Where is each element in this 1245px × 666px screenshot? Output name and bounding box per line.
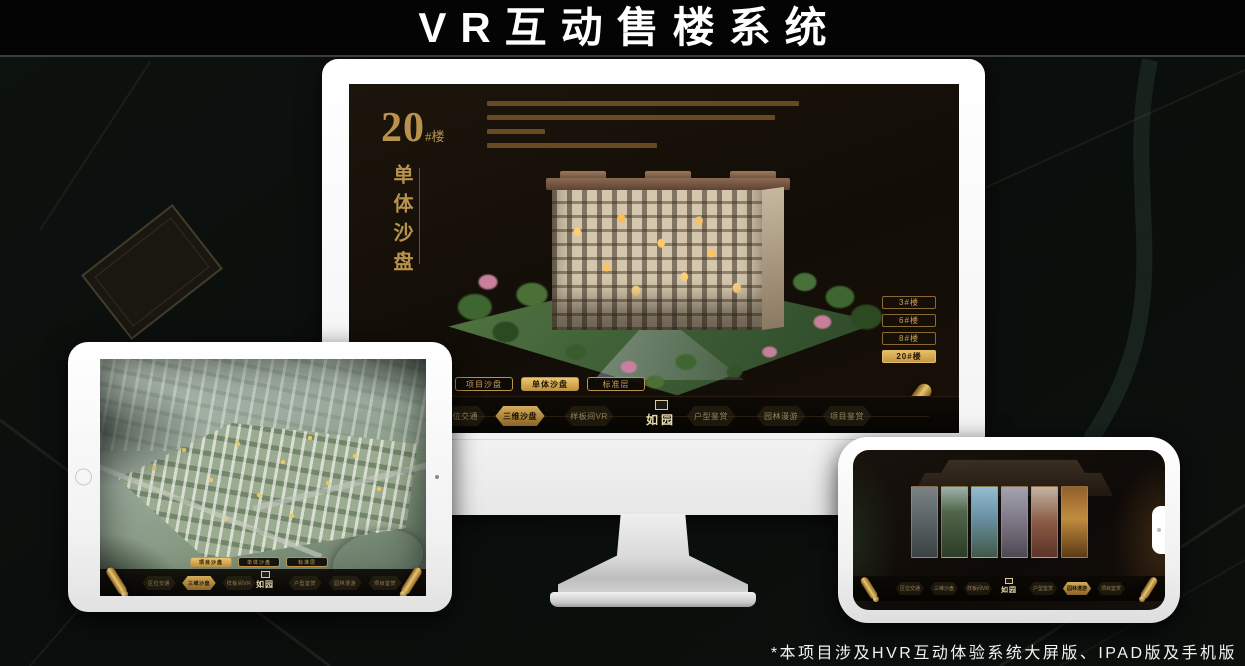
- brand-logo-text: 如园: [252, 579, 278, 590]
- building-3d-model[interactable]: [444, 152, 884, 402]
- tablet-subtab-standard-floor[interactable]: 标准层: [286, 557, 328, 567]
- footnote-text: *本项目涉及HVR互动体验系统大屏版、IPAD版及手机版: [771, 639, 1237, 663]
- text-line: [487, 115, 775, 120]
- nav-item-label: 区位交通: [894, 582, 926, 595]
- brand-logo: 如园: [643, 400, 679, 428]
- scene-card[interactable]: [911, 486, 938, 558]
- building-button-6[interactable]: 6#楼: [882, 314, 936, 327]
- scene-card[interactable]: [971, 486, 998, 558]
- subtab-project-sandtable[interactable]: 项目沙盘: [455, 377, 513, 391]
- phone-notch: [1152, 506, 1165, 554]
- nav-item-label: 园林漫游: [1061, 582, 1093, 595]
- nav-item-label: 户型鉴赏: [286, 576, 324, 590]
- nav-item-label: 园林漫游: [326, 576, 364, 590]
- scene-card[interactable]: [1061, 486, 1088, 558]
- nav-item-label: 项目鉴赏: [819, 406, 875, 426]
- nav-item-label: 园林漫游: [753, 406, 809, 426]
- text-line: [487, 143, 657, 148]
- subtab-single-sandtable[interactable]: 单体沙盘: [521, 377, 579, 391]
- building-title: 20#楼: [381, 104, 445, 152]
- phone-device: 区位交通 三维沙盘 样板间VR 如园 户型鉴赏: [838, 437, 1180, 623]
- seal-icon: [1005, 578, 1013, 584]
- title-bar: VR互动售楼系统: [0, 0, 1245, 57]
- scene-card[interactable]: [941, 486, 968, 558]
- phone-camera-icon: [1157, 528, 1161, 532]
- nav-item-label: 三维沙盘: [492, 406, 548, 426]
- tablet-nav-project-view[interactable]: 项目鉴赏: [366, 576, 404, 590]
- tablet-navbar: 区位交通 三维沙盘 样板间VR 如园 户型鉴赏: [100, 569, 426, 596]
- phone-nav-3d-sandtable[interactable]: 三维沙盘: [928, 582, 960, 595]
- nav-item-label: 项目鉴赏: [1095, 582, 1127, 595]
- building-button-8[interactable]: 8#楼: [882, 332, 936, 345]
- nav-item-project-view[interactable]: 项目鉴赏: [819, 406, 875, 426]
- building-button-20[interactable]: 20#楼: [882, 350, 936, 363]
- tablet-screen: 项目沙盘 单体沙盘 标准层 区位交通 三维沙盘 样板间VR: [100, 359, 426, 596]
- scroll-icon[interactable]: [105, 566, 129, 596]
- nav-item-garden-roam[interactable]: 园林漫游: [753, 406, 809, 426]
- nav-item-3d-sandtable[interactable]: 三维沙盘: [492, 406, 548, 426]
- building-number-suffix: #楼: [425, 129, 445, 144]
- phone-nav-project-view[interactable]: 项目鉴赏: [1095, 582, 1127, 595]
- brand-logo: 如园: [997, 578, 1021, 595]
- tablet-camera-icon: [75, 469, 92, 486]
- nav-item-showroom-vr[interactable]: 样板间VR: [561, 406, 617, 426]
- tablet-nav-location-traffic[interactable]: 区位交通: [140, 576, 178, 590]
- phone-screen: 区位交通 三维沙盘 样板间VR 如园 户型鉴赏: [853, 450, 1165, 610]
- nav-item-label: 样板间VR: [962, 582, 994, 595]
- building-number: 20: [381, 105, 425, 151]
- phone-nav-floorplan-view[interactable]: 户型鉴赏: [1027, 582, 1059, 595]
- tablet-device: 项目沙盘 单体沙盘 标准层 区位交通 三维沙盘 样板间VR: [68, 342, 452, 612]
- seal-icon: [655, 400, 668, 410]
- tablet-subtab-project-sandtable[interactable]: 项目沙盘: [190, 557, 232, 567]
- seal-icon: [261, 571, 270, 578]
- brand-logo: 如园: [252, 571, 278, 590]
- description-text-block: [487, 101, 799, 157]
- scroll-icon[interactable]: [859, 576, 879, 601]
- text-line: [487, 101, 799, 106]
- scene-card[interactable]: [1001, 486, 1028, 558]
- nav-item-label: 三维沙盘: [180, 576, 218, 590]
- phone-nav-showroom-vr[interactable]: 样板间VR: [962, 582, 994, 595]
- nav-item-label: 区位交通: [140, 576, 178, 590]
- tablet-button-icon: [435, 475, 439, 479]
- nav-item-label: 三维沙盘: [928, 582, 960, 595]
- subtab-standard-floor[interactable]: 标准层: [587, 377, 645, 391]
- tablet-nav-3d-sandtable[interactable]: 三维沙盘: [180, 576, 218, 590]
- nav-item-label: 户型鉴赏: [1027, 582, 1059, 595]
- scene-gallery: [911, 486, 1088, 558]
- building-button-3[interactable]: 3#楼: [882, 296, 936, 309]
- scroll-icon[interactable]: [1139, 576, 1159, 601]
- nav-item-label: 户型鉴赏: [683, 406, 739, 426]
- nav-item-floorplan-view[interactable]: 户型鉴赏: [683, 406, 739, 426]
- poster-canvas: VR互动售楼系统 20#楼 单体沙盘: [0, 0, 1245, 666]
- text-line: [487, 129, 545, 134]
- page-title: VR互动售楼系统: [404, 7, 840, 49]
- monitor-stand-base: [550, 592, 756, 607]
- phone-nav-garden-roam[interactable]: 园林漫游: [1061, 582, 1093, 595]
- nav-item-label: 项目鉴赏: [366, 576, 404, 590]
- building-subtitle-vertical: 单体沙盘: [387, 164, 416, 304]
- tablet-subtab-single-sandtable[interactable]: 单体沙盘: [238, 557, 280, 567]
- plaque-shape: [82, 205, 221, 338]
- tablet-nav-garden-roam[interactable]: 园林漫游: [326, 576, 364, 590]
- brand-logo-text: 如园: [643, 411, 679, 428]
- tablet-nav-floorplan-view[interactable]: 户型鉴赏: [286, 576, 324, 590]
- phone-navbar: 区位交通 三维沙盘 样板间VR 如园 户型鉴赏: [853, 576, 1165, 601]
- landscape-foliage: [444, 152, 884, 402]
- nav-item-label: 样板间VR: [561, 406, 617, 426]
- brand-logo-text: 如园: [997, 585, 1021, 595]
- scene-card[interactable]: [1031, 486, 1058, 558]
- divider-line: [419, 168, 420, 264]
- phone-nav-location-traffic[interactable]: 区位交通: [894, 582, 926, 595]
